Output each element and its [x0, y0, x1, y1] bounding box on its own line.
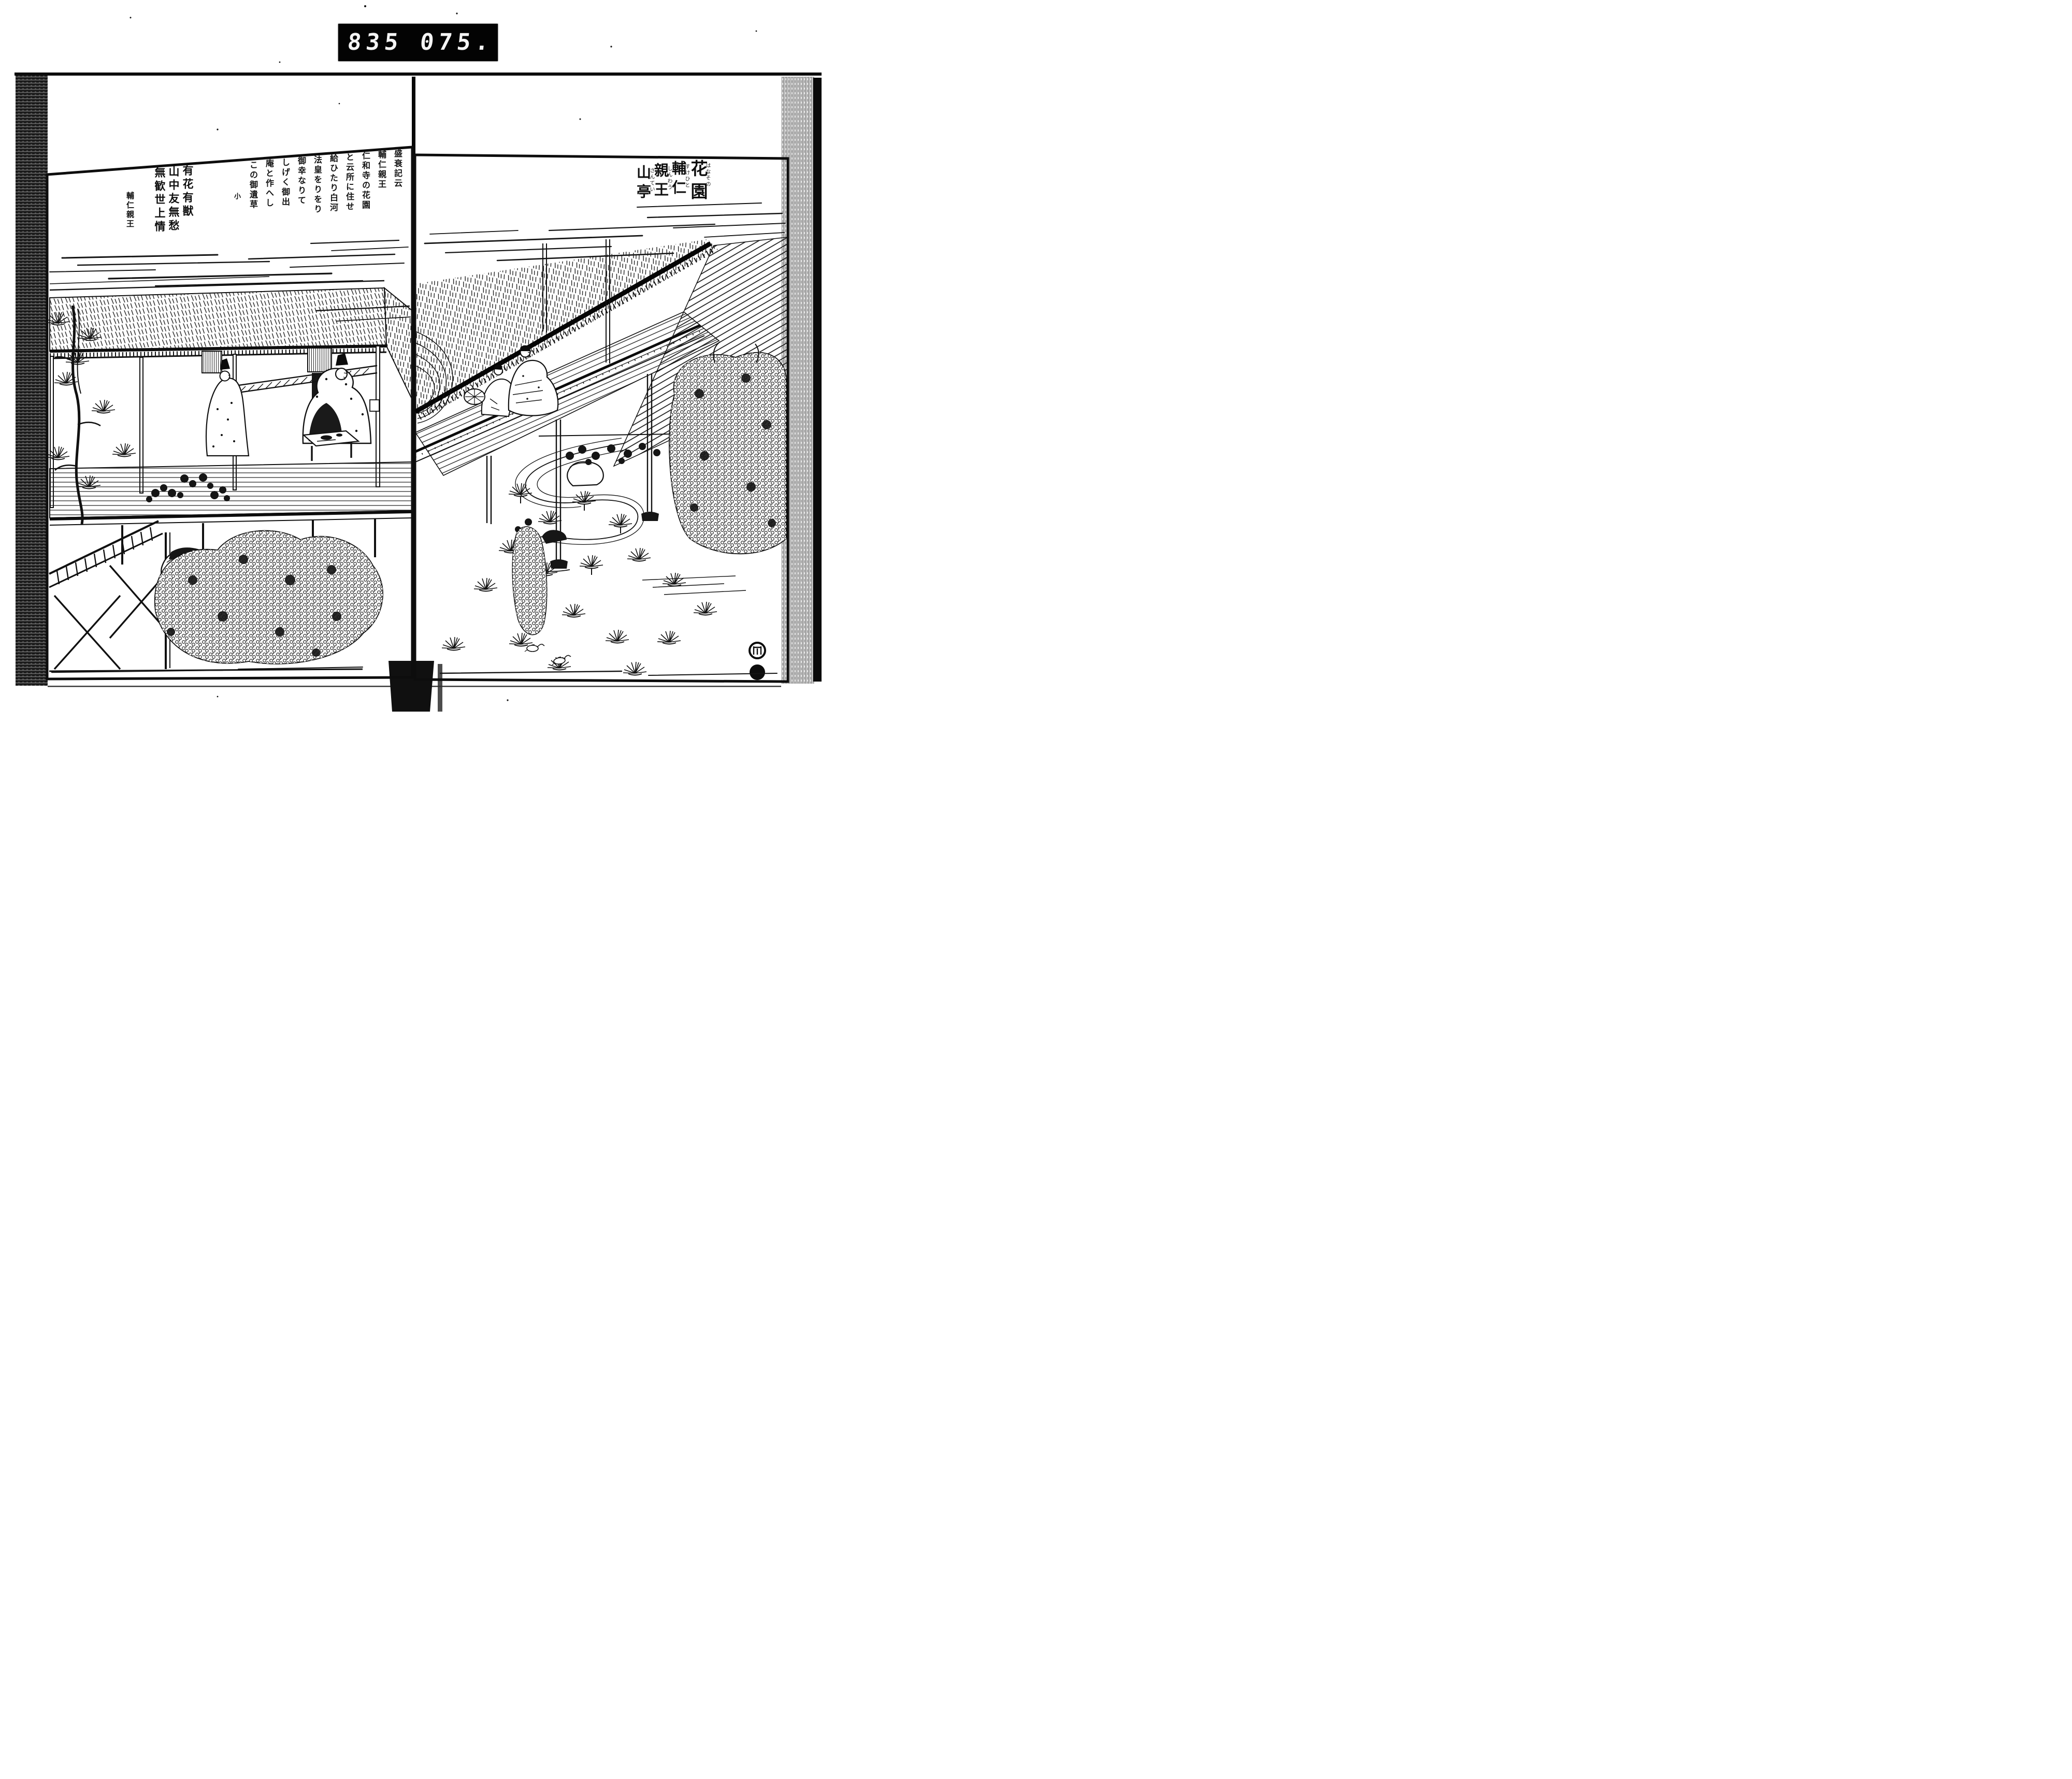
- publisher-seal-bottom: [750, 664, 765, 680]
- back-cover-edge: [813, 78, 822, 682]
- passage-column-10: この御遺草: [246, 161, 258, 210]
- blossom-tree-right: [669, 342, 786, 554]
- passage-end-mark: 小: [232, 193, 242, 199]
- furigana-santei: さんてい: [647, 168, 655, 193]
- furigana-sukehito: すけひと: [683, 164, 690, 189]
- passage-column-3: 仁和寺の花園: [358, 151, 371, 210]
- rolled-blind: [202, 351, 222, 373]
- publisher-seal-top: [750, 643, 765, 658]
- frame-counter-right-digits: 075.: [419, 24, 496, 61]
- book-top-edge: [15, 73, 822, 76]
- frame-counter: 835 075.: [338, 24, 498, 61]
- passage-column-4: と云所に住せ: [342, 153, 355, 212]
- sedge-hat-icon: [464, 389, 485, 404]
- furigana-shinno: しんわう: [665, 166, 673, 191]
- blossom-patch-small: [512, 527, 546, 635]
- passage-column-7: 御幸なりて: [294, 156, 307, 206]
- furigana-hanazono: はなその: [703, 163, 711, 187]
- woodblock-illustration: [0, 0, 829, 712]
- poem-column-2: 山中友無愁: [166, 166, 181, 233]
- poem-attribution: 輔仁親王: [124, 192, 135, 229]
- passage-column-1: 盛衰記云: [391, 149, 403, 189]
- frame-counter-left-digits: 835: [346, 24, 405, 61]
- binding-shadow: [438, 664, 442, 712]
- passage-column-6: 法皇をりをり: [310, 155, 323, 214]
- passage-column-2: 輔仁親王: [375, 150, 387, 190]
- poem-column-3: 無歓世上情: [152, 167, 167, 234]
- passage-column-5: 給ひたり白河: [326, 154, 339, 213]
- side-shelf: [370, 400, 379, 411]
- rolled-blind: [308, 348, 332, 372]
- passage-column-9: 庵と作へし: [262, 159, 275, 208]
- passage-column-8: しげく御出: [278, 158, 291, 207]
- poem-column-1: 有花有獣: [180, 165, 195, 219]
- fore-edge-left: [16, 76, 48, 686]
- scanned-book-spread: 835 075. 花園 はなその 輔仁 すけひと 親王 しんわう 山亭 さんてい…: [0, 0, 829, 712]
